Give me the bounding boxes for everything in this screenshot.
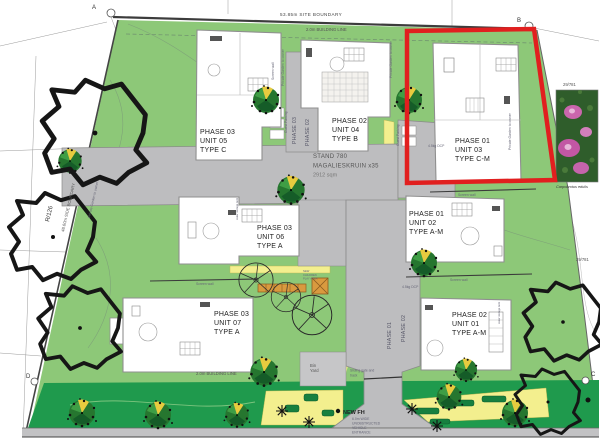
new-fh-label: NEW FH (343, 410, 365, 416)
unit-06-number: UNIT 06 (257, 234, 284, 241)
building-line-label: 2.0m BUILDING LINE (306, 27, 347, 32)
marker-a-label: A (92, 5, 96, 11)
neighbor-ref-label-1: 29/781 (563, 82, 576, 87)
site-plan-page: PHASE 03 UNIT 05 TYPE C PHASE 02 UNIT 04… (0, 0, 600, 439)
play-area-label-line3: PLAY AREA (303, 277, 318, 281)
unit-02-phase: PHASE 01 (409, 211, 444, 218)
road-label-phase03: PHASE 03 (292, 117, 298, 144)
marker-d-label: D (26, 374, 31, 380)
road-label-phase02-lower: PHASE 02 (401, 315, 407, 342)
private-garden-label-2: Private Garden to owner (389, 40, 393, 78)
building-unit-03: PHASE 01 UNIT 03 TYPE C-M (433, 43, 521, 181)
entrance-label-line4: ENTRANCE (352, 431, 371, 435)
private-garden-label-1: Private Garden to owner (281, 48, 285, 86)
road-label-phase02-upper: PHASE 02 (305, 119, 311, 146)
stand-number-label: STAND 780 (313, 154, 348, 160)
building-unit-07: PHASE 03 UNIT 07 TYPE A (110, 298, 253, 372)
sliding-gate-label-line1: Sliding gate and (350, 369, 374, 373)
unit-01-phase: PHASE 02 (452, 312, 487, 319)
bin-yard-label-line2: Yard (310, 368, 319, 373)
unit-02-type: TYPE A-M (409, 229, 443, 236)
plant-photo: Carpobrotus edulis (556, 90, 598, 189)
dcp-label-1: 4.5kg DCP (428, 144, 445, 148)
entrance-label-line2: UNOBSTRUCTED (352, 422, 381, 426)
dcp-label-2: 4.5kg DCP (402, 285, 419, 289)
unit-07-phase: PHASE 03 (214, 311, 249, 318)
screen-wall-label-2: Screen wall (450, 278, 468, 282)
unit-05-number: UNIT 05 (200, 138, 227, 145)
stand-suburb-label: MAGALIESKRUIN x35 (313, 164, 379, 170)
play-area-label-line1: NEW (303, 269, 310, 273)
marker-c-label: C (591, 372, 596, 378)
water-tank-label-1: water storage tank (235, 197, 239, 220)
private-garden-label-3: Private Garden to owner (508, 112, 512, 150)
screen-wall-label-3: Screen wall (458, 193, 476, 197)
unit-05-type: TYPE C (200, 147, 226, 154)
unit-04-phase: PHASE 02 (332, 118, 367, 125)
road-label-phase01: PHASE 01 (387, 322, 393, 349)
street-strip (22, 428, 599, 437)
fire-hydrant-dot (336, 409, 340, 413)
unit-01-type: TYPE A-M (452, 330, 486, 337)
building-unit-06: PHASE 03 UNIT 06 TYPE A (179, 197, 299, 264)
unit-07-type: TYPE A (214, 329, 240, 336)
unit-03-number: UNIT 03 (455, 147, 482, 154)
marker-b-label: B (517, 18, 521, 24)
building-line-bottom-label: 2.0m BUILDING LINE (196, 371, 237, 376)
entrance-label-line3: VEHICLE (352, 426, 367, 430)
unit-06-type: TYPE A (257, 243, 283, 250)
unit-02-number: UNIT 02 (409, 220, 436, 227)
site-boundary-label: 53.85m SITE BOUNDARY (280, 12, 342, 17)
unit-04-number: UNIT 04 (332, 127, 359, 134)
screen-wall-label-4: Screen wall (271, 62, 275, 80)
unit-04-type: TYPE B (332, 136, 358, 143)
unit-03-type: TYPE C-M (455, 156, 490, 163)
unit-05-phase: PHASE 03 (200, 129, 235, 136)
neighbor-ref-label-2: 29/781 (576, 257, 589, 262)
unit-03-phase: PHASE 01 (455, 138, 490, 145)
play-area-label-line2: CHILDREN (303, 273, 317, 277)
screen-wall-label-1: Screen wall (196, 282, 214, 286)
sliding-gate-label-line2: track (350, 374, 358, 378)
unit-06-phase: PHASE 03 (257, 225, 292, 232)
bin-yard-area (300, 352, 346, 386)
water-tank-label-2: water storage tank (497, 301, 501, 324)
site-plan-drawing: PHASE 03 UNIT 05 TYPE C PHASE 02 UNIT 04… (0, 0, 600, 439)
unit-01-number: UNIT 01 (452, 321, 479, 328)
guest-parking-label-2: Guest Parking (396, 124, 400, 146)
stand-area-label: 2912 sqm (313, 173, 338, 179)
plant-photo-caption: Carpobrotus edulis (556, 185, 588, 189)
unit-07-number: UNIT 07 (214, 320, 241, 327)
entrance-label-line1: 6.0m WIDE (352, 417, 370, 421)
guest-parking-label-1: Guest Parking (284, 111, 288, 133)
